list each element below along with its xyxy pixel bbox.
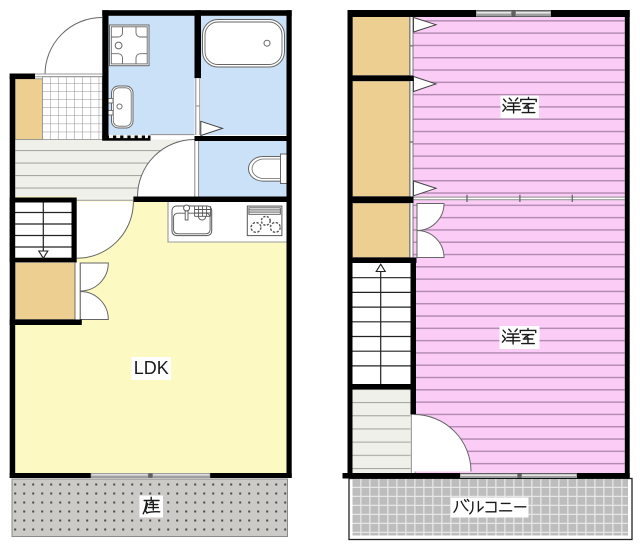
svg-text:LDK: LDK bbox=[134, 358, 169, 378]
